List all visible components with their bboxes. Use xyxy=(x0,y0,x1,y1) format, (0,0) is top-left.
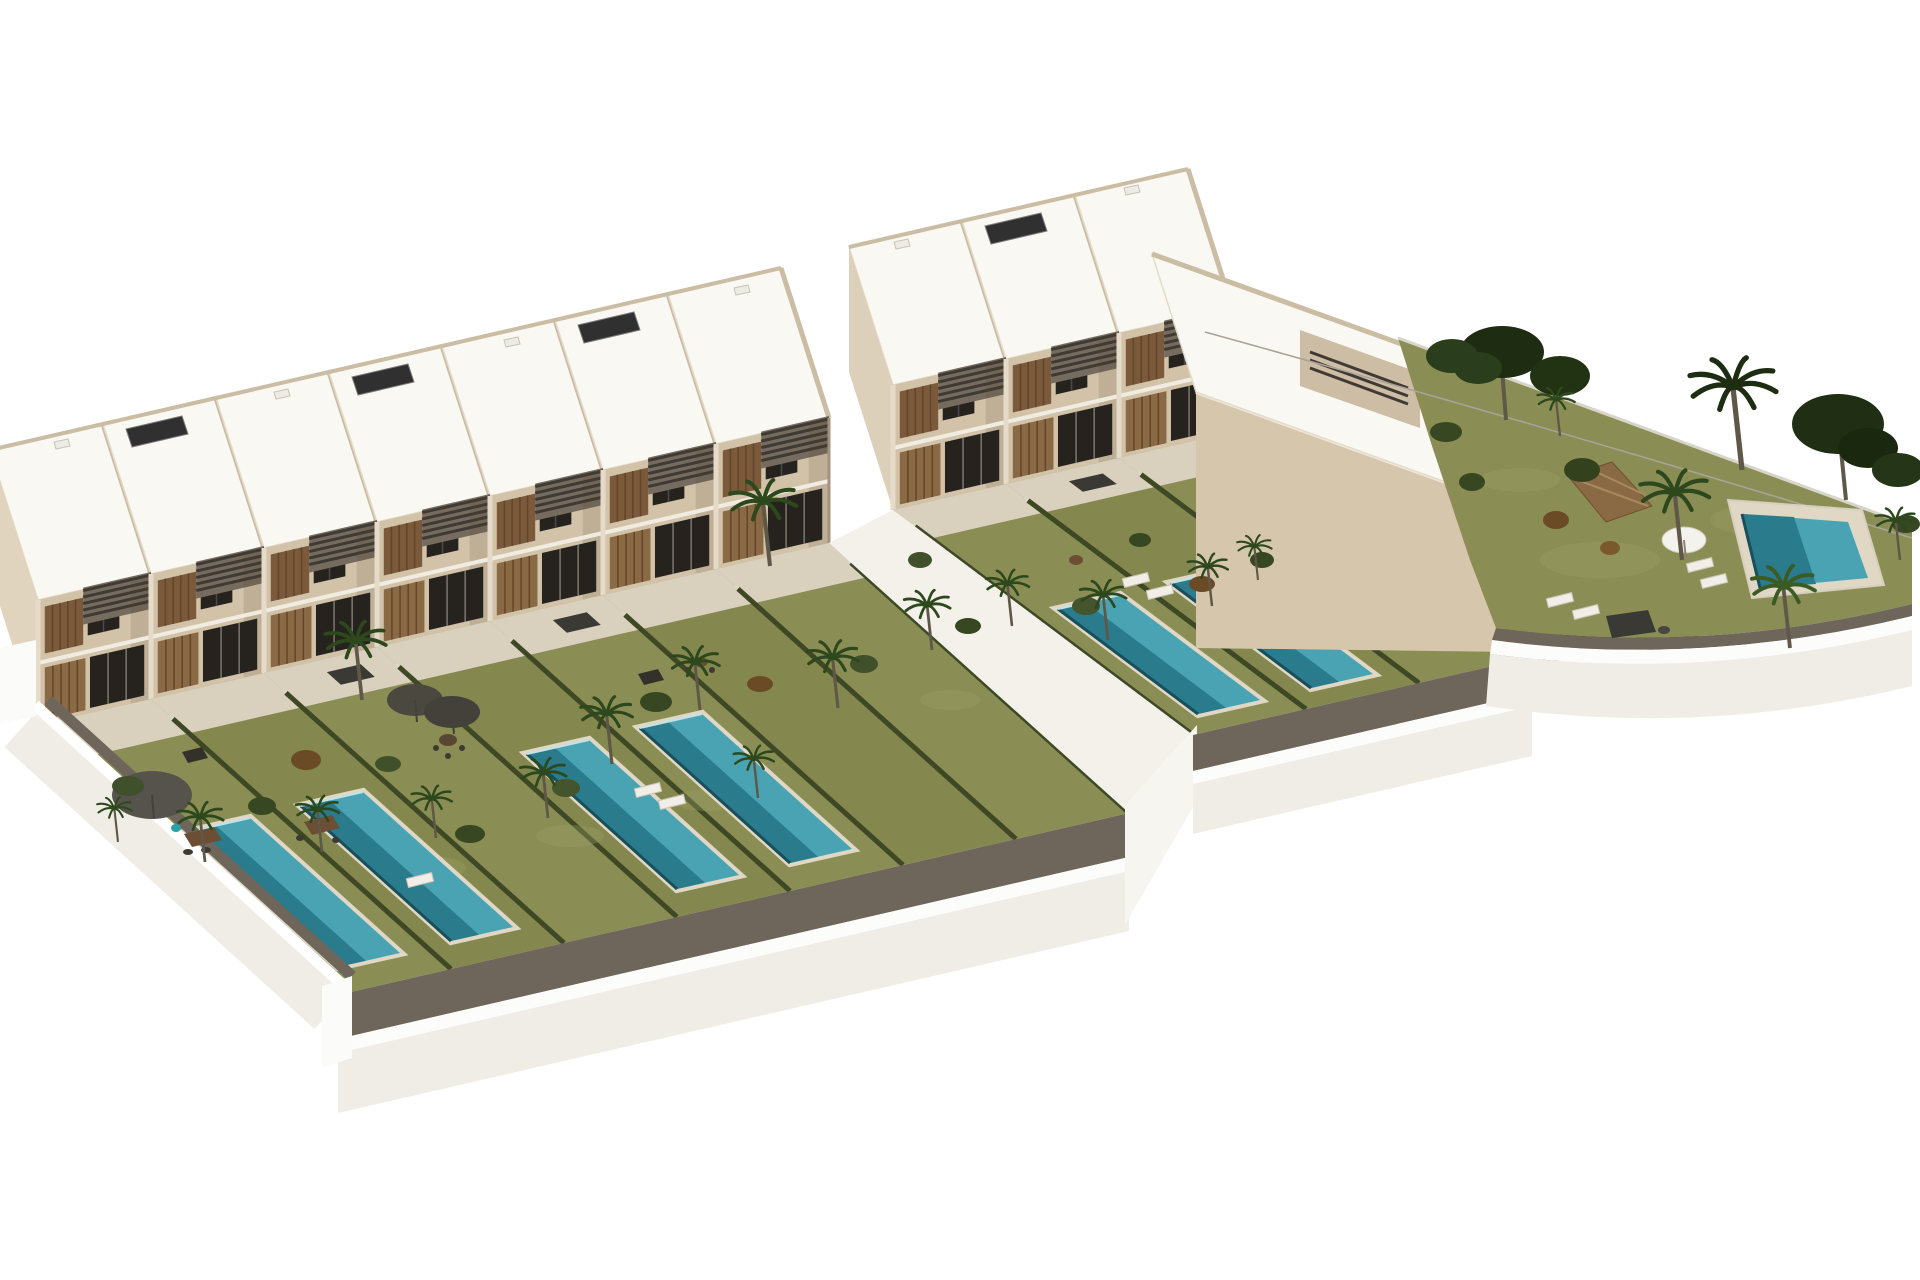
wood-cladding xyxy=(158,572,196,628)
communal-garden-element xyxy=(1540,542,1660,578)
communal-garden-element xyxy=(1564,458,1600,482)
communal-garden-element xyxy=(1069,555,1083,565)
shrub xyxy=(1129,533,1151,547)
communal-garden-element xyxy=(709,667,715,673)
communal-garden-element xyxy=(1426,339,1478,373)
shrub xyxy=(248,797,276,815)
wood-cladding xyxy=(271,546,309,602)
communal-garden-element xyxy=(1430,422,1462,442)
shrub xyxy=(375,756,401,772)
wood-cladding-lower xyxy=(1126,391,1167,452)
shrub xyxy=(291,750,321,770)
communal-garden-element xyxy=(1459,473,1485,491)
communal-garden-element xyxy=(183,849,193,855)
communal-garden-element xyxy=(332,837,340,843)
site-wall xyxy=(322,976,352,1068)
wood-cladding xyxy=(384,520,422,576)
shrub xyxy=(640,692,672,712)
communal-garden-element xyxy=(1480,468,1560,492)
shrub xyxy=(552,779,580,797)
wood-cladding xyxy=(1013,357,1051,413)
wood-cladding-lower xyxy=(497,554,538,615)
shrub xyxy=(955,618,981,634)
wood-cladding-lower xyxy=(610,528,651,589)
communal-garden-element xyxy=(171,824,181,832)
shrub xyxy=(455,825,485,843)
wood-cladding-lower xyxy=(384,580,425,641)
shrub xyxy=(747,676,773,692)
communal-garden-element xyxy=(459,745,465,751)
communal-garden-element xyxy=(1543,511,1569,529)
wood-cladding xyxy=(45,598,83,654)
communal-garden-element xyxy=(1600,541,1620,555)
wood-cladding xyxy=(497,494,535,550)
communal-garden-element xyxy=(296,835,304,841)
wood-cladding xyxy=(1126,331,1164,387)
communal-garden-element xyxy=(1658,626,1670,634)
communal-garden-element xyxy=(439,734,457,746)
communal-garden-element xyxy=(445,753,451,759)
palm-trunk xyxy=(1733,388,1742,471)
wood-cladding-lower xyxy=(1013,417,1054,478)
wood-cladding-lower xyxy=(271,606,312,667)
shrub xyxy=(112,776,144,796)
site-wall xyxy=(0,640,36,724)
wood-cladding-lower xyxy=(158,632,199,693)
wood-cladding xyxy=(610,468,648,524)
shrub xyxy=(908,552,932,568)
wood-cladding xyxy=(900,383,938,439)
lawn-highlight xyxy=(536,825,604,847)
architectural-render xyxy=(0,0,1920,1280)
render-svg xyxy=(0,0,1920,1280)
lawn-highlight xyxy=(920,690,980,710)
communal-garden-element xyxy=(433,745,439,751)
wood-cladding-lower xyxy=(900,443,941,504)
